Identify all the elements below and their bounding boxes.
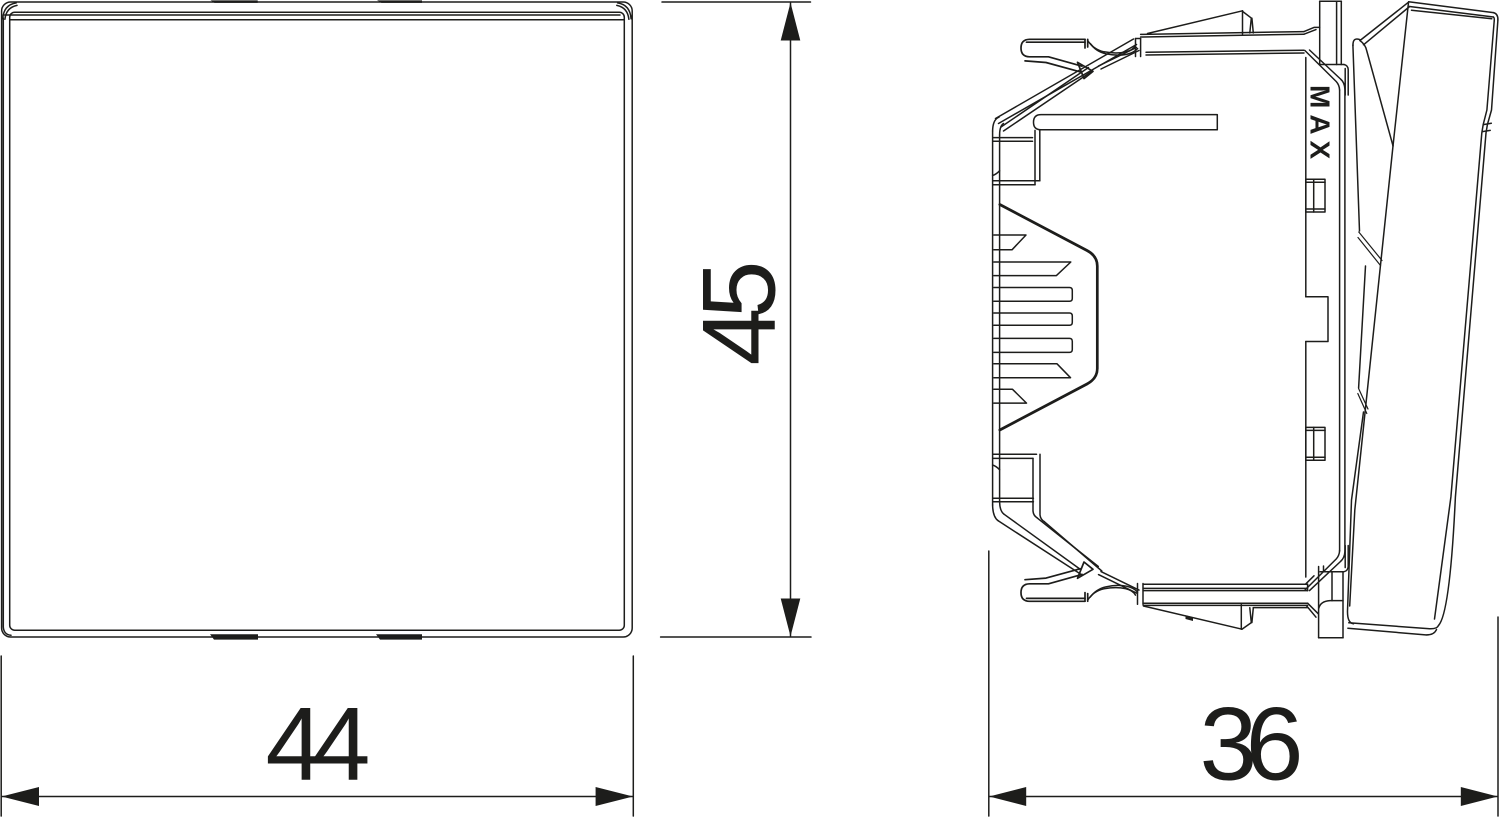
svg-text:36: 36 <box>1200 687 1304 803</box>
svg-text:45: 45 <box>682 261 798 366</box>
svg-text:44: 44 <box>266 687 371 803</box>
svg-text:MAX: MAX <box>1305 85 1336 165</box>
